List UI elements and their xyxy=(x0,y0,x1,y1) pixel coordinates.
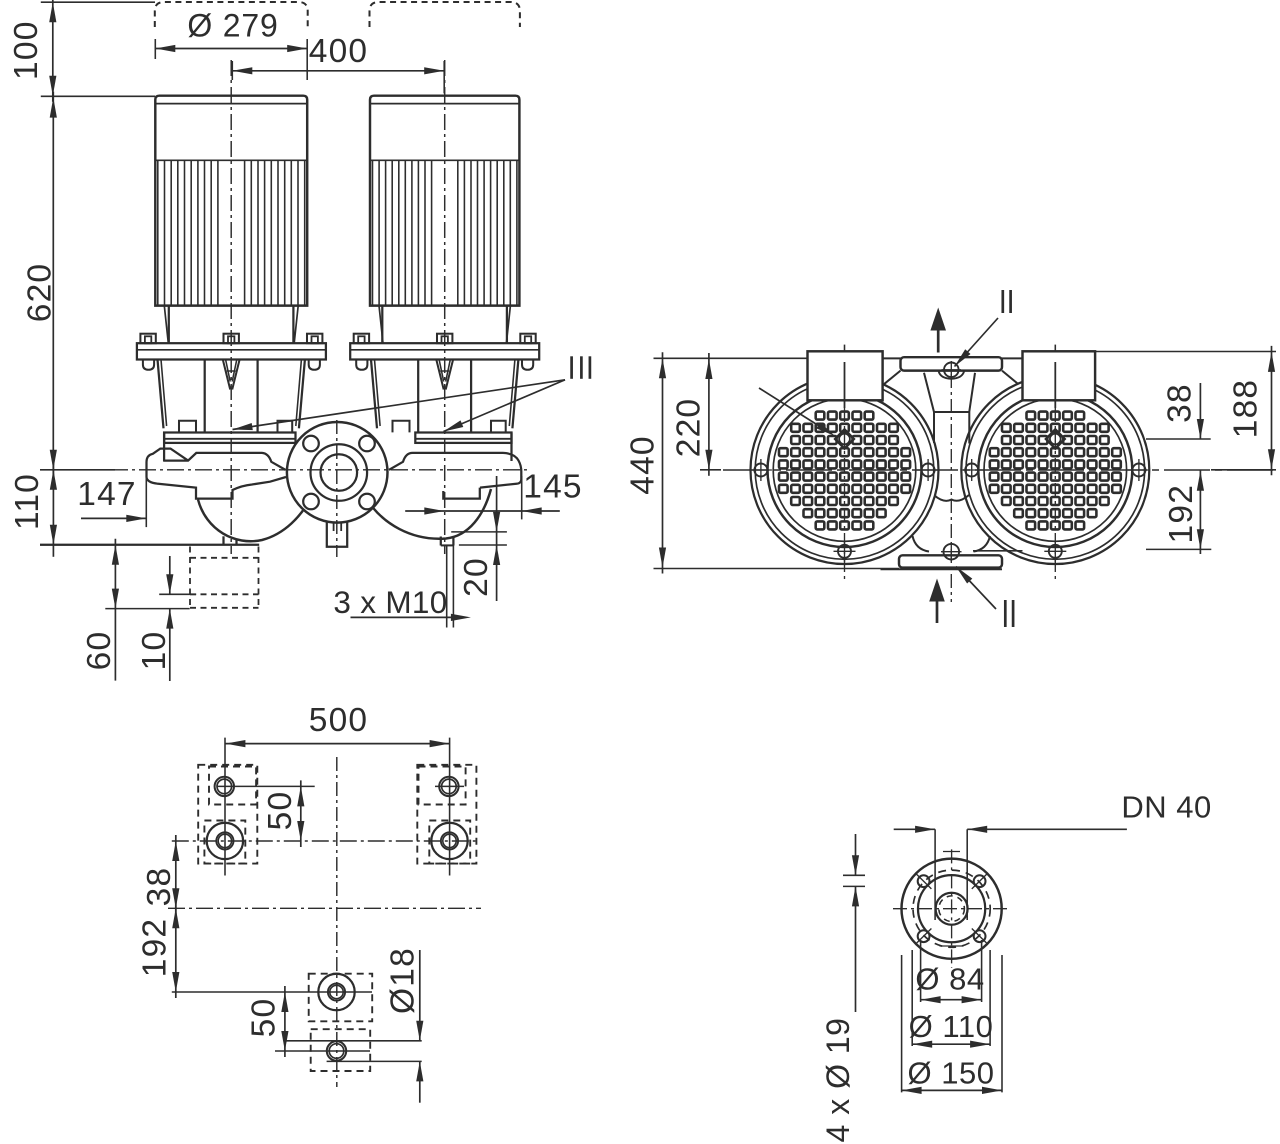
svg-text:50: 50 xyxy=(246,998,283,1038)
svg-text:4 x Ø 19: 4 x Ø 19 xyxy=(820,1018,856,1143)
svg-text:620: 620 xyxy=(22,263,59,323)
svg-text:20: 20 xyxy=(458,557,495,597)
svg-text:220: 220 xyxy=(671,398,708,458)
svg-text:50: 50 xyxy=(262,791,299,831)
svg-text:188: 188 xyxy=(1228,379,1265,439)
svg-text:10: 10 xyxy=(136,631,173,671)
svg-text:147: 147 xyxy=(77,476,137,513)
svg-text:Ø 84: Ø 84 xyxy=(915,962,984,997)
svg-text:192: 192 xyxy=(1163,484,1200,544)
svg-text:Ø 110: Ø 110 xyxy=(909,1009,994,1044)
svg-text:38: 38 xyxy=(141,867,178,907)
svg-text:100: 100 xyxy=(8,20,45,79)
svg-text:Ø18: Ø18 xyxy=(385,947,422,1014)
svg-text:500: 500 xyxy=(309,702,369,739)
svg-text:60: 60 xyxy=(81,631,118,671)
svg-text:Ø 150: Ø 150 xyxy=(908,1056,995,1091)
svg-text:DN 40: DN 40 xyxy=(1121,790,1211,825)
svg-text:145: 145 xyxy=(523,468,583,505)
svg-text:440: 440 xyxy=(625,435,662,495)
svg-text:38: 38 xyxy=(1162,383,1199,423)
svg-text:Ø 279: Ø 279 xyxy=(187,8,278,44)
svg-text:3 x M10: 3 x M10 xyxy=(333,584,447,620)
svg-text:400: 400 xyxy=(309,33,369,70)
svg-text:110: 110 xyxy=(9,473,46,530)
svg-text:192: 192 xyxy=(137,918,174,978)
